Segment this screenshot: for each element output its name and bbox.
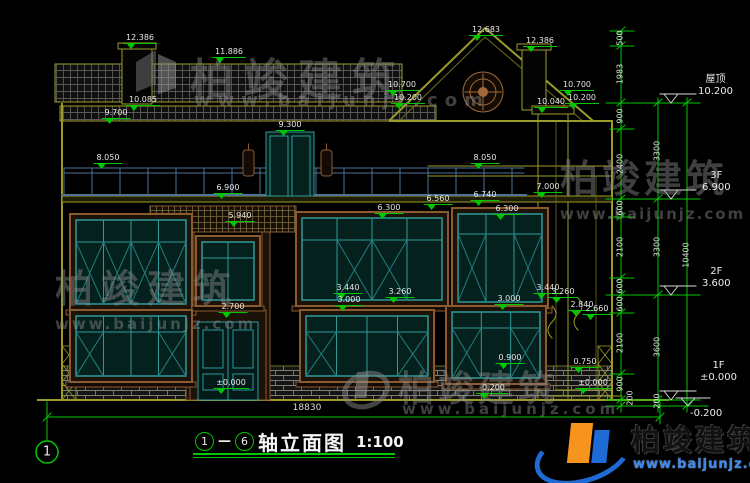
elevation-mark-value: -0.200 (476, 383, 508, 394)
elevation-mark-value: 7.000 (534, 182, 563, 193)
chain-dimension: 200 (626, 390, 635, 405)
elevation-mark-triangle (428, 205, 436, 210)
title-axis-from: 1 (195, 432, 214, 451)
elevation-mark-triangle (218, 194, 226, 199)
elevation-mark-value: ±0.000 (213, 378, 249, 389)
elevation-mark-triangle (579, 389, 587, 394)
elevation-mark: 9.300 (276, 120, 305, 136)
elevation-mark-triangle (475, 201, 483, 206)
level-2f: 2F3.600 (702, 266, 731, 290)
chain-dimension: 3300 (653, 237, 662, 257)
elevation-mark-value: 10.200 (565, 93, 599, 104)
logo-url-text: www.baijunjz.com (633, 457, 750, 472)
elevation-mark-value: 3.260 (386, 287, 415, 298)
elevation-mark-value: 10.700 (385, 80, 419, 91)
elevation-mark-triangle (130, 106, 138, 111)
axis-bubble-1: 1 (43, 445, 51, 460)
elevation-mark-triangle (379, 214, 387, 219)
elevation-mark-triangle (538, 108, 546, 113)
elevation-mark-triangle (475, 164, 483, 169)
elevation-mark: 12.386 (123, 33, 157, 49)
elevation-mark-triangle (480, 394, 488, 399)
elevation-mark: 12.683 (469, 25, 503, 41)
elevation-mark-value: 10.085 (126, 95, 160, 106)
elevation-mark: 0.900 (496, 353, 525, 369)
elevation-mark: 8.050 (471, 153, 500, 169)
chain-dimension: 900 (616, 108, 625, 123)
watermark-left: 柏竣建筑 www.baijunjz.com (55, 258, 256, 333)
elevation-mark-value: 11.886 (212, 47, 246, 58)
chain-dimension: 900 (616, 376, 625, 391)
level-1f: 1F±0.000 (700, 360, 737, 384)
elevation-mark: 11.886 (212, 47, 246, 63)
elevation-mark-triangle (497, 215, 505, 220)
balcony-door (266, 132, 314, 196)
elevation-mark-value: 6.300 (375, 203, 404, 214)
elevation-mark-triangle (553, 298, 561, 303)
elevation-mark: 10.200 (565, 93, 599, 109)
elevation-mark-value: 8.050 (471, 153, 500, 164)
elevation-mark-value: 6.740 (471, 190, 500, 201)
chain-dimension: 1983 (616, 64, 625, 84)
elevation-mark: ±0.000 (213, 378, 249, 394)
elevation-mark-triangle (217, 389, 225, 394)
elevation-mark-value: 12.386 (123, 33, 157, 44)
title-underline (193, 453, 395, 455)
title-dash: — (218, 434, 231, 449)
logo-brand-text: 柏竣建筑 (631, 417, 750, 459)
chain-dimension: 3300 (653, 141, 662, 161)
logo-building-icon (567, 423, 593, 463)
elevation-mark: 3.000 (335, 295, 364, 311)
elevation-mark-value: 5.940 (226, 211, 255, 222)
elevation-mark: 8.050 (94, 153, 123, 169)
cad-elevation-canvas: 柏竣建筑 www.baijunjz.com 柏竣建筑 www.baijunjz.… (0, 0, 750, 483)
elevation-mark-value: 9.300 (276, 120, 305, 131)
elevation-mark-triangle (527, 47, 535, 52)
elevation-mark-value: 3.440 (334, 283, 363, 294)
elevation-mark-triangle (538, 193, 546, 198)
elevation-mark-triangle (280, 131, 288, 136)
elevation-mark: -0.200 (476, 383, 508, 399)
elevation-mark-value: 12.386 (523, 36, 557, 47)
elevation-mark-value: ±0.000 (575, 378, 611, 389)
elevation-mark-value: 6.560 (424, 194, 453, 205)
elevation-mark-value: 9.700 (102, 108, 131, 119)
elevation-mark: ±0.000 (575, 378, 611, 394)
elevation-mark-value: 3.260 (549, 287, 578, 298)
elevation-mark: 6.900 (214, 183, 243, 199)
elevation-mark: 5.940 (226, 211, 255, 227)
elevation-mark: 10.200 (391, 93, 425, 109)
chain-dimension: 2100 (616, 237, 625, 257)
elevation-mark-triangle (572, 311, 580, 316)
elevation-mark-triangle (390, 298, 398, 303)
elevation-mark: 10.040 (534, 97, 568, 113)
elevation-mark: 3.000 (495, 294, 524, 310)
chain-dimension: 2400 (616, 154, 625, 174)
elevation-mark-triangle (575, 368, 583, 373)
chain-dimension: 600 (616, 296, 625, 311)
chain-dimension: 500 (616, 30, 625, 45)
elevation-mark: 0.750 (571, 357, 600, 373)
elevation-mark-triangle (216, 58, 224, 63)
elevation-mark: 7.000 (534, 182, 563, 198)
elevation-mark-value: 10.040 (534, 97, 568, 108)
chain-dimension: 600 (616, 200, 625, 215)
elevation-mark-value: 10.700 (560, 80, 594, 91)
elevation-mark-triangle (499, 305, 507, 310)
elevation-mark-value: 10.200 (391, 93, 425, 104)
elevation-mark-value: 2.700 (219, 302, 248, 313)
chain-dimension: 600 (616, 278, 625, 293)
title-name: 轴立面图 (258, 427, 346, 456)
chain-dimension: 2100 (616, 333, 625, 353)
elevation-mark-value: 3.000 (335, 295, 364, 306)
level-3f: 3F6.900 (702, 170, 731, 194)
elevation-mark-triangle (127, 44, 135, 49)
overall-width-dimension: 18830 (293, 403, 322, 413)
elevation-mark: 6.300 (375, 203, 404, 219)
chain-dimension: 3600 (653, 337, 662, 357)
elevation-mark: 6.300 (493, 204, 522, 220)
elevation-mark-triangle (98, 164, 106, 169)
elevation-mark-triangle (106, 119, 114, 124)
elevation-mark-value: 3.000 (495, 294, 524, 305)
elevation-mark-value: 0.900 (496, 353, 525, 364)
elevation-mark-value: 0.750 (571, 357, 600, 368)
elevation-mark-triangle (500, 364, 508, 369)
watermark-logo-icon (128, 48, 184, 98)
elevation-mark-value: 6.900 (214, 183, 243, 194)
chain-dimension: 200 (653, 393, 662, 408)
watermark-swoosh-icon (340, 364, 392, 412)
level-roof: 屋顶10.200 (698, 74, 733, 98)
site-logo: 柏竣建筑 www.baijunjz.com (533, 417, 748, 481)
elevation-mark: 12.386 (523, 36, 557, 52)
elevation-mark-triangle (473, 36, 481, 41)
elevation-mark-value: 12.683 (469, 25, 503, 36)
drawing-title: 1 — 6 轴立面图 1:100 (195, 427, 404, 456)
elevation-mark-triangle (587, 315, 595, 320)
elevation-mark-triangle (395, 104, 403, 109)
elevation-mark-triangle (569, 104, 577, 109)
elevation-mark: 2.660 (583, 304, 612, 320)
elevation-mark-triangle (538, 294, 546, 299)
title-axis-to: 6 (235, 432, 254, 451)
title-scale: 1:100 (356, 433, 404, 451)
elevation-mark: 3.260 (386, 287, 415, 303)
elevation-mark-value: 8.050 (94, 153, 123, 164)
elevation-mark: 6.560 (424, 194, 453, 210)
elevation-mark-value: 6.300 (493, 204, 522, 215)
elevation-mark: 10.085 (126, 95, 160, 111)
elevation-mark-value: 2.660 (583, 304, 612, 315)
elevation-mark: 2.700 (219, 302, 248, 318)
chain-dimension: 10400 (682, 242, 691, 267)
elevation-mark-triangle (339, 306, 347, 311)
elevation-mark-triangle (230, 222, 238, 227)
title-underline-2 (193, 457, 395, 458)
elevation-mark-triangle (223, 313, 231, 318)
elevation-mark: 9.700 (102, 108, 131, 124)
